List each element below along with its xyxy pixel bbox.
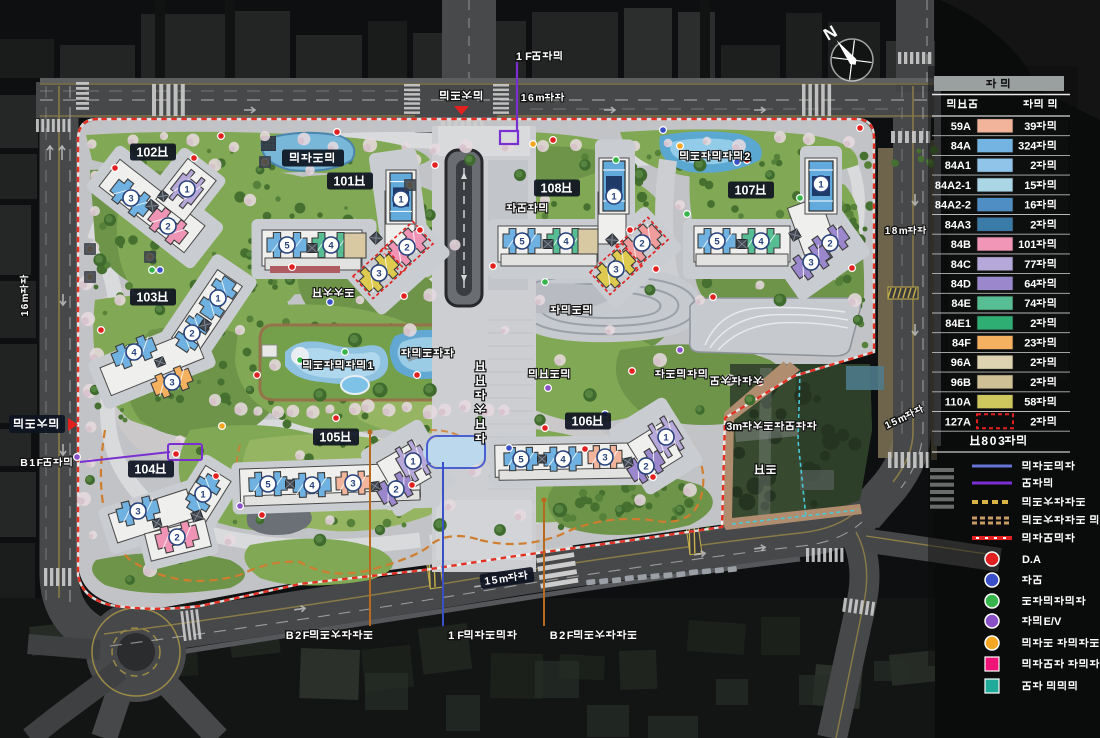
svg-text:101: 101 <box>333 175 354 189</box>
svg-text:2: 2 <box>393 484 398 495</box>
svg-text:3: 3 <box>376 268 381 279</box>
svg-text:104: 104 <box>134 463 155 477</box>
svg-text:324: 324 <box>1018 141 1037 153</box>
svg-text:96B: 96B <box>951 377 971 389</box>
svg-text:2: 2 <box>1030 318 1036 330</box>
svg-text:1: 1 <box>200 489 206 500</box>
svg-text:2: 2 <box>643 461 648 472</box>
svg-text:84F: 84F <box>952 338 971 350</box>
svg-text:1: 1 <box>398 194 404 205</box>
svg-text:2: 2 <box>1030 357 1036 369</box>
svg-text:84E1: 84E1 <box>945 318 971 330</box>
svg-text:58: 58 <box>1024 397 1036 409</box>
svg-text:5: 5 <box>518 454 524 465</box>
svg-text:84B: 84B <box>951 239 971 251</box>
svg-text:E/V: E/V <box>1044 616 1062 628</box>
svg-text:4: 4 <box>563 236 569 247</box>
svg-text:B2F: B2F <box>550 630 574 642</box>
svg-text:4: 4 <box>309 480 315 491</box>
svg-text:2: 2 <box>827 238 832 249</box>
svg-text:2: 2 <box>1030 416 1036 428</box>
svg-text:2: 2 <box>744 151 750 163</box>
svg-text:1: 1 <box>663 432 669 443</box>
svg-text:107: 107 <box>735 184 756 198</box>
svg-text:103: 103 <box>136 291 157 305</box>
svg-text:84C: 84C <box>951 259 971 271</box>
svg-text:3: 3 <box>350 478 355 489</box>
svg-text:110A: 110A <box>945 397 971 409</box>
svg-text:D.A: D.A <box>1022 554 1041 566</box>
svg-text:1: 1 <box>184 184 190 195</box>
svg-text:3: 3 <box>135 506 140 517</box>
svg-text:23: 23 <box>1024 338 1036 350</box>
svg-text:1: 1 <box>611 191 617 202</box>
svg-text:18m: 18m <box>885 226 908 237</box>
svg-text:84E: 84E <box>951 298 971 310</box>
svg-text:5: 5 <box>714 236 720 247</box>
svg-text:3: 3 <box>613 264 618 275</box>
svg-text:4: 4 <box>758 236 764 247</box>
svg-text:96A: 96A <box>951 357 971 369</box>
svg-text:2: 2 <box>639 238 644 249</box>
svg-text:16: 16 <box>1024 200 1036 212</box>
svg-text:1: 1 <box>410 456 416 467</box>
svg-text:5: 5 <box>284 240 290 251</box>
svg-text:84A3: 84A3 <box>945 219 971 231</box>
svg-text:64: 64 <box>1024 278 1037 290</box>
svg-text:84A1: 84A1 <box>945 160 971 172</box>
svg-text:127A: 127A <box>945 416 971 428</box>
svg-text:2: 2 <box>404 242 409 253</box>
svg-text:2: 2 <box>165 221 170 232</box>
svg-text:5: 5 <box>519 236 525 247</box>
svg-text:15: 15 <box>1024 180 1036 192</box>
svg-text:4: 4 <box>560 454 566 465</box>
svg-text:3: 3 <box>169 377 174 388</box>
svg-text:84A2-2: 84A2-2 <box>935 200 971 212</box>
svg-text:105: 105 <box>319 431 340 445</box>
svg-text:3m: 3m <box>726 421 742 433</box>
svg-text:4: 4 <box>131 347 137 358</box>
svg-text:108: 108 <box>541 182 562 196</box>
svg-text:106: 106 <box>572 415 593 429</box>
svg-text:1: 1 <box>367 360 373 372</box>
svg-text:2: 2 <box>174 532 179 543</box>
svg-text:2: 2 <box>1030 377 1036 389</box>
svg-text:101: 101 <box>1018 239 1036 251</box>
svg-text:5: 5 <box>265 479 271 490</box>
svg-text:803: 803 <box>981 434 1005 448</box>
svg-text:39: 39 <box>1024 121 1036 133</box>
svg-text:2: 2 <box>189 328 194 339</box>
svg-text:2: 2 <box>1030 219 1036 231</box>
svg-text:59A: 59A <box>951 121 971 133</box>
svg-text:84D: 84D <box>951 278 971 290</box>
svg-text:74: 74 <box>1024 298 1037 310</box>
svg-text:3: 3 <box>128 193 133 204</box>
svg-text:B2F: B2F <box>286 630 310 642</box>
svg-text:4: 4 <box>328 240 334 251</box>
svg-text:2: 2 <box>1030 160 1036 172</box>
svg-text:77: 77 <box>1024 259 1036 271</box>
svg-text:16m: 16m <box>20 293 31 316</box>
svg-text:84A2-1: 84A2-1 <box>935 180 971 192</box>
svg-text:1: 1 <box>215 293 221 304</box>
svg-text:3: 3 <box>602 452 607 463</box>
svg-text:102: 102 <box>136 146 157 160</box>
svg-text:1: 1 <box>818 179 824 190</box>
svg-text:B1F: B1F <box>20 457 43 469</box>
svg-text:3: 3 <box>808 257 813 268</box>
svg-text:16m: 16m <box>521 92 545 104</box>
svg-text:84A: 84A <box>951 141 971 153</box>
